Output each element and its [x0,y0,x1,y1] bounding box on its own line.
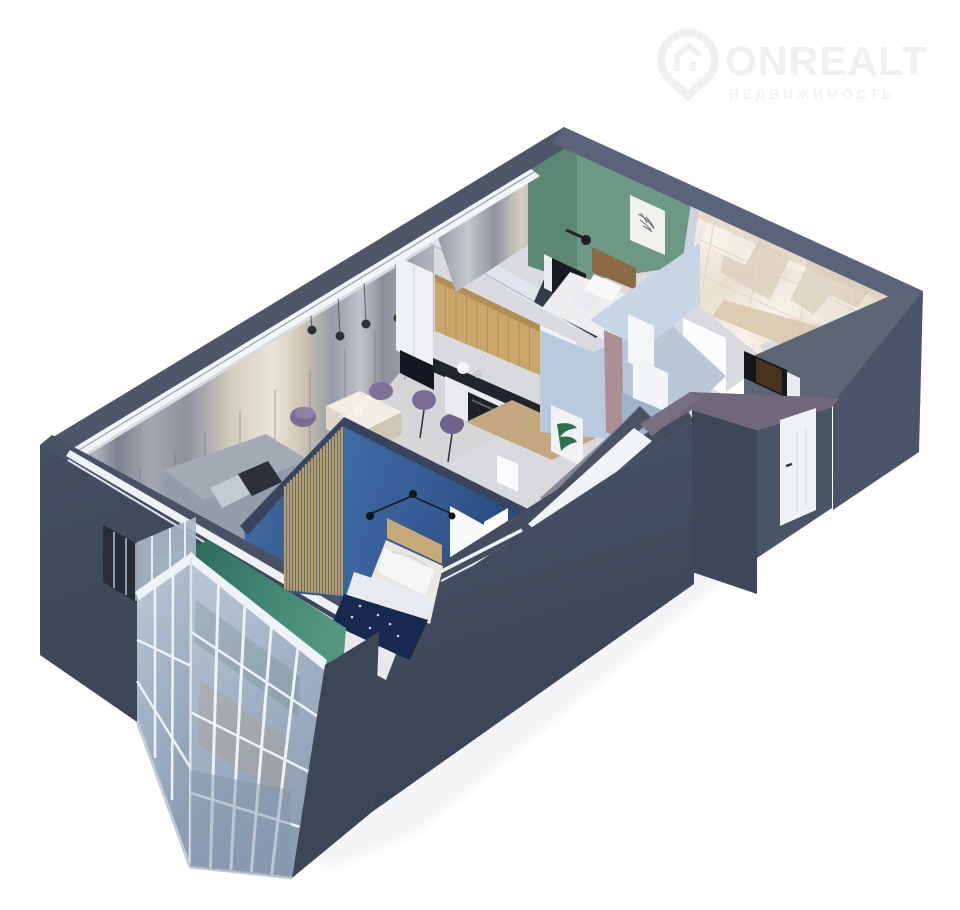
svg-text:ONREALT: ONREALT [725,38,927,84]
svg-text:НЕДВИЖИМОСТЬ: НЕДВИЖИМОСТЬ [729,87,896,102]
